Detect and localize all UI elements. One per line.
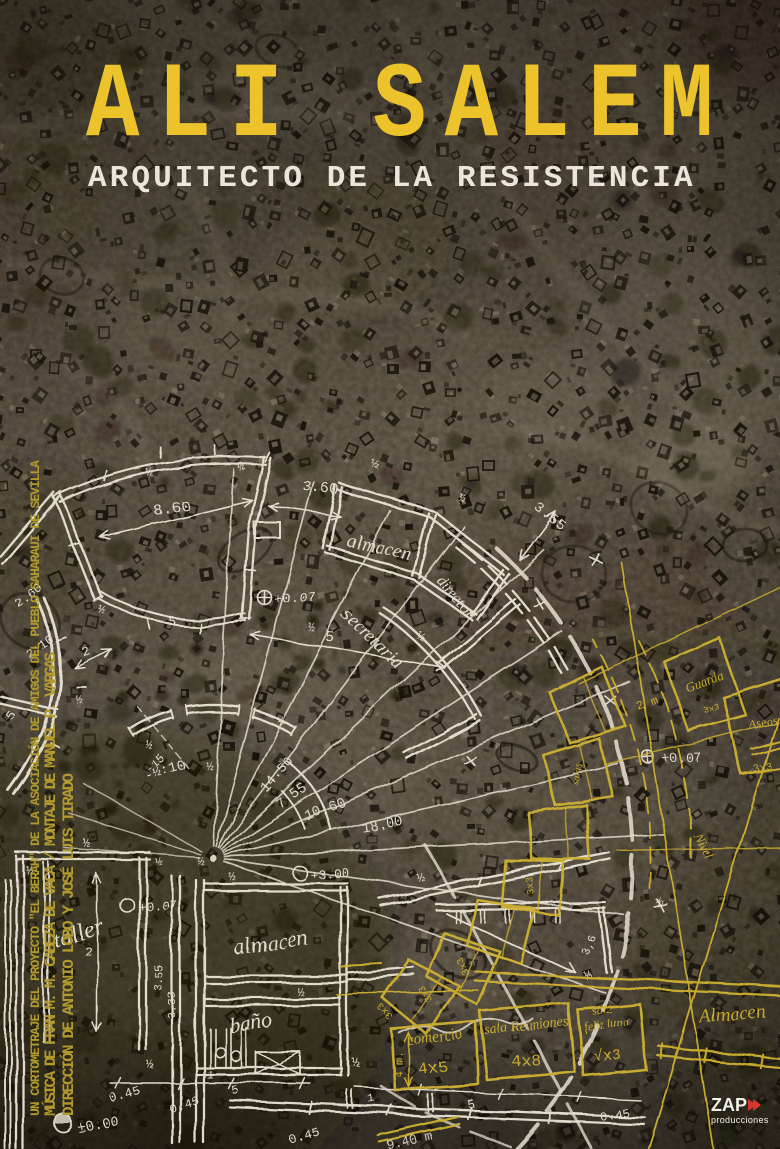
svg-text:+0.07: +0.07 [138, 898, 178, 916]
svg-text:½: ½ [76, 694, 84, 708]
svg-text:½: ½ [228, 870, 236, 884]
svg-text:4 m.: 4 m. [394, 1051, 406, 1077]
svg-text:½: ½ [146, 1058, 154, 1072]
svg-text:½: ½ [296, 985, 304, 999]
svg-text:½: ½ [206, 760, 214, 774]
svg-text:3.55: 3.55 [154, 965, 166, 991]
svg-text:+3.00: +3.00 [310, 866, 350, 884]
svg-text:√x3: √x3 [594, 1046, 622, 1066]
svg-text:2: 2 [84, 944, 92, 959]
svg-text:½: ½ [196, 854, 204, 868]
svg-text:3x3: 3x3 [526, 877, 539, 896]
svg-text:1: 1 [206, 1068, 213, 1082]
svg-text:½: ½ [82, 836, 90, 850]
svg-text:4x8: 4x8 [512, 1052, 542, 1072]
svg-text:½: ½ [351, 1055, 359, 1069]
